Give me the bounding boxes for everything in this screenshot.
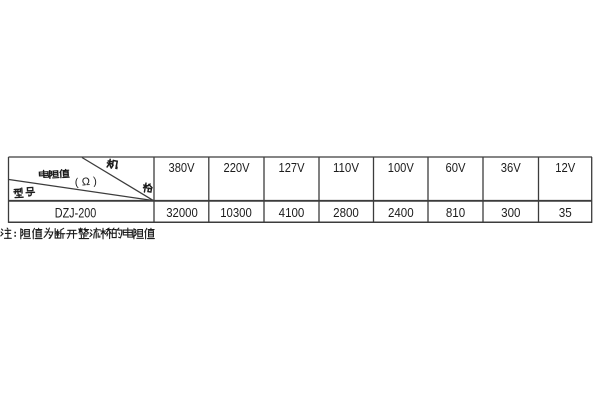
svg-text:2400: 2400 — [388, 206, 414, 220]
svg-text:12V: 12V — [555, 160, 575, 175]
svg-text:60V: 60V — [446, 160, 466, 175]
svg-text:4100: 4100 — [279, 206, 305, 220]
svg-text:Ω: Ω — [81, 176, 90, 189]
svg-text:110V: 110V — [333, 160, 359, 175]
svg-text:DZJ-200: DZJ-200 — [55, 205, 97, 220]
svg-text:380V: 380V — [169, 160, 195, 175]
svg-text:810: 810 — [446, 206, 465, 220]
svg-text:): ) — [93, 175, 98, 187]
svg-text:220V: 220V — [224, 160, 250, 175]
svg-text:(: ( — [74, 177, 79, 189]
svg-text:300: 300 — [501, 206, 520, 220]
svg-text:2800: 2800 — [333, 206, 359, 220]
svg-text:127V: 127V — [279, 160, 305, 175]
svg-text:35: 35 — [559, 206, 572, 220]
svg-text:100V: 100V — [388, 160, 414, 175]
svg-text:32000: 32000 — [166, 206, 198, 220]
svg-text:36V: 36V — [501, 160, 521, 175]
svg-text:10300: 10300 — [220, 206, 252, 220]
